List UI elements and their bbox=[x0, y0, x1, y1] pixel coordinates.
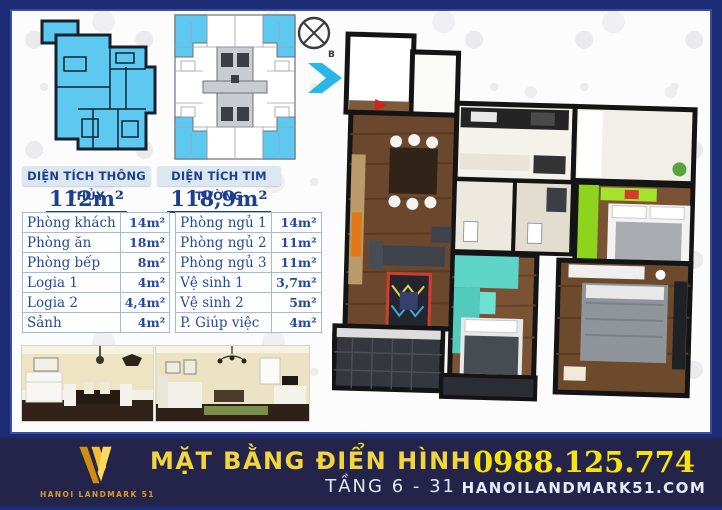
room-balcony-strip bbox=[441, 375, 536, 400]
room-name: P. Giúp việc bbox=[176, 313, 272, 333]
room-area: 11m² bbox=[272, 233, 321, 253]
room-area: 8m² bbox=[120, 253, 169, 273]
table-row: Logia 24,4m² bbox=[23, 293, 170, 313]
room-area: 4,4m² bbox=[120, 293, 169, 313]
room-name: Phòng khách bbox=[23, 213, 121, 233]
room-name: Phòng ngủ 2 bbox=[176, 233, 272, 253]
page-subtitle: TẦNG 6 - 31 bbox=[150, 476, 460, 497]
room-area: 4m² bbox=[120, 313, 169, 333]
room-name: Phòng bếp bbox=[23, 253, 121, 273]
table-row: Phòng bếp8m² bbox=[23, 253, 170, 273]
table-row: Phòng ngủ 311m² bbox=[176, 253, 321, 273]
table-row: Phòng ăn18m² bbox=[23, 233, 170, 253]
table-row: Sảnh4m² bbox=[23, 313, 170, 333]
photo-living-room bbox=[156, 346, 309, 421]
unit-floorplan-2d bbox=[18, 9, 170, 163]
room-name: Sảnh bbox=[23, 313, 121, 333]
building-floorplate bbox=[173, 13, 297, 161]
area-value-gross-text: 118,9m² bbox=[167, 186, 270, 213]
room-table-left: Phòng khách14m² Phòng ăn18m² Phòng bếp8m… bbox=[22, 212, 170, 333]
footer-contact-block: 0988.125.774 HANOILANDMARK51.COM bbox=[460, 447, 722, 497]
room-name: Logia 1 bbox=[23, 273, 121, 293]
interior-photos bbox=[22, 346, 309, 421]
table-row: Phòng ngủ 211m² bbox=[176, 233, 321, 253]
room-top-right bbox=[573, 106, 695, 183]
room-name: Phòng ngủ 3 bbox=[176, 253, 272, 273]
footer-title-block: MẶT BẰNG ĐIỂN HÌNH TẦNG 6 - 31 bbox=[150, 447, 460, 497]
table-row: Vệ sinh 13,7m² bbox=[176, 273, 321, 293]
table-row: Vệ sinh 25m² bbox=[176, 293, 321, 313]
room-area: 4m² bbox=[272, 313, 321, 333]
room-area: 4m² bbox=[120, 273, 169, 293]
photo-dining-room bbox=[22, 346, 153, 421]
room-area: 14m² bbox=[272, 213, 321, 233]
room-entry bbox=[346, 34, 459, 117]
room-bathrooms bbox=[453, 179, 573, 254]
brand-logo-text: HANOI LANDMARK 51 bbox=[40, 490, 150, 499]
apartment-3d-floorplan bbox=[332, 9, 712, 433]
plan2d-body bbox=[56, 35, 155, 149]
room-area-tables: Phòng khách14m² Phòng ăn18m² Phòng bếp8m… bbox=[22, 212, 322, 333]
phone-number: 0988.125.774 bbox=[460, 447, 708, 477]
room-logia bbox=[333, 326, 443, 391]
area-value-gross: 118,9m² bbox=[157, 186, 281, 210]
room-area: 11m² bbox=[272, 253, 321, 273]
table-row: Phòng khách14m² bbox=[23, 213, 170, 233]
room-bedroom2-teal bbox=[449, 253, 537, 393]
room-kitchen bbox=[455, 103, 575, 182]
room-area: 14m² bbox=[120, 213, 169, 233]
room-name: Phòng ngủ 1 bbox=[176, 213, 272, 233]
page-title: MẶT BẰNG ĐIỂN HÌNH bbox=[150, 447, 460, 475]
landmark51-logo-icon bbox=[73, 445, 117, 485]
table-row: P. Giúp việc4m² bbox=[176, 313, 321, 333]
room-living-dining bbox=[345, 112, 457, 331]
area-value-net: 112m² bbox=[22, 186, 151, 210]
website-url: HANOILANDMARK51.COM bbox=[460, 479, 708, 497]
area-value-net-text: 112m² bbox=[46, 186, 127, 213]
room-table-right: Phòng ngủ 114m² Phòng ngủ 211m² Phòng ng… bbox=[175, 212, 321, 333]
room-area: 5m² bbox=[272, 293, 321, 313]
table-row: Phòng ngủ 114m² bbox=[176, 213, 321, 233]
room-name: Vệ sinh 1 bbox=[176, 273, 272, 293]
brand-logo: HANOI LANDMARK 51 bbox=[0, 445, 150, 499]
table-row: Logia 14m² bbox=[23, 273, 170, 293]
area-label-net: DIỆN TÍCH THÔNG THỦY bbox=[22, 166, 151, 186]
room-area: 18m² bbox=[120, 233, 169, 253]
room-name: Vệ sinh 2 bbox=[176, 293, 272, 313]
room-bedroom3 bbox=[555, 260, 691, 396]
flyer-page: B bbox=[0, 0, 722, 510]
footer-bar: HANOI LANDMARK 51 MẶT BẰNG ĐIỂN HÌNH TẦN… bbox=[0, 438, 722, 506]
content-panel: B bbox=[10, 9, 712, 434]
room-name: Logia 2 bbox=[23, 293, 121, 313]
room-name: Phòng ăn bbox=[23, 233, 121, 253]
room-area: 3,7m² bbox=[272, 273, 321, 293]
area-label-gross: DIỆN TÍCH TIM TƯỜNG bbox=[157, 166, 281, 186]
